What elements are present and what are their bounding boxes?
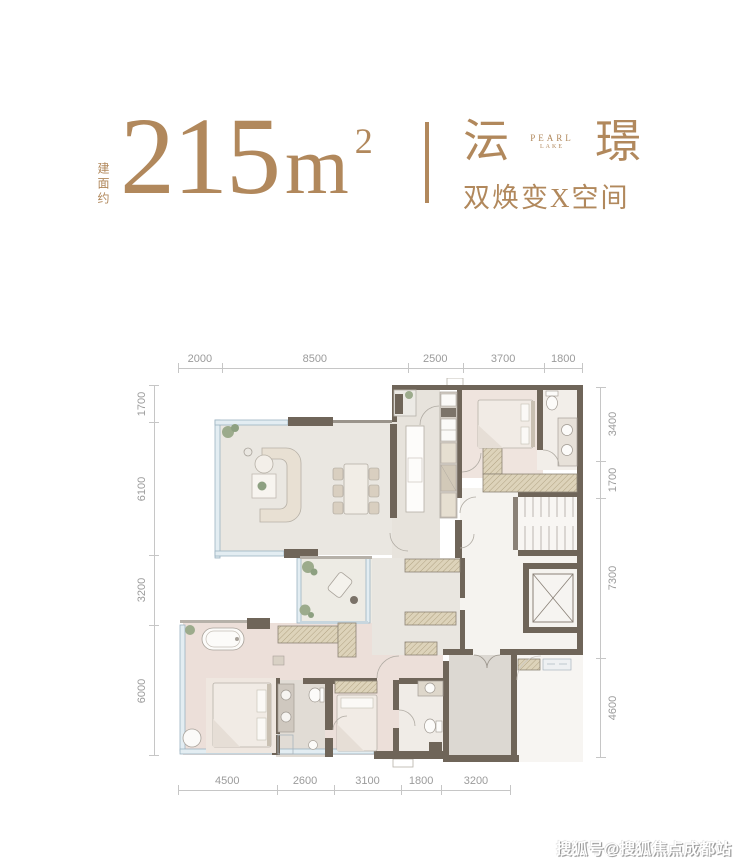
dim-segment: 3700 [463,346,544,368]
dimension-line-top: 2000 8500 2500 3700 1800 [178,346,583,369]
sink [281,712,291,722]
dim-segment: 2600 [277,768,334,790]
pillow [341,698,373,708]
dim-label: 4500 [178,775,277,787]
logo-word-top: PEARL [530,133,574,144]
dim-label: 6000 [136,678,148,702]
toilet [425,719,436,733]
dim-label: 3200 [441,775,511,787]
plant [258,482,267,491]
nightstand [273,656,284,665]
area-figure: 215 m 2 [120,101,373,211]
logo-word-bottom: LAKE [530,144,574,152]
brand-name-row: 沄 PEARL LAKE 璟 [463,116,641,169]
area-unit: m [285,125,349,207]
dim-label: 1800 [544,353,583,365]
dim-segment: 1800 [401,768,440,790]
dim-segment: 2500 [408,346,463,368]
pearl-lake-logo: PEARL LAKE [530,133,574,152]
dim-label: 8500 [222,353,408,365]
bedroom-top [478,400,535,448]
dim-segment: 1800 [544,346,583,368]
dim-segment: 3200 [130,555,154,625]
brand-char-right: 璟 [595,116,641,169]
dim-label: 2500 [408,353,463,365]
pillow [521,404,529,421]
area-exponent: 2 [355,123,373,159]
area-prefix-label: 建面约 [95,162,112,207]
dimension-line-bottom: 4500 2600 3100 1800 3200 [178,768,511,791]
pillow [257,690,266,712]
brand-tagline: 双焕变X空间 [463,176,641,215]
brand-char-left: 沄 [463,116,509,169]
side-table [255,455,273,473]
dim-label: 3100 [334,775,402,787]
dim-segment: 6100 [130,422,154,555]
dim-segment: 6000 [130,625,154,756]
pillow [257,718,266,740]
dim-label: 2600 [277,775,334,787]
hall-cabinet [543,659,571,670]
toilet [547,396,558,410]
sink [281,690,291,700]
elevator [533,574,573,622]
floorplan-poster: 建面约 215 m 2 沄 PEARL LAKE 璟 双焕变X空间 2000 8… [0,0,740,865]
dim-label: 1800 [401,775,440,787]
dim-label: 6100 [136,476,148,500]
dim-label: 3700 [463,353,544,365]
dim-label: 1700 [136,391,148,415]
sink [562,445,573,456]
dim-segment: 1700 [130,385,154,422]
dining-set [333,464,379,514]
dim-label: 3200 [136,578,148,602]
watermark: 搜狐号@搜狐焦点成都站 [556,837,732,859]
dim-segment: 3100 [334,768,402,790]
floor-plan-drawing [178,378,610,770]
kitchen-island [406,426,424,512]
dim-label: 2000 [178,353,222,365]
pouf [183,729,201,747]
dim-segment: 3200 [441,768,511,790]
pillow [521,427,529,444]
header-divider [425,122,429,203]
toilet [309,688,321,702]
stairs [518,497,577,550]
dim-segment: 2000 [178,346,222,368]
area-number: 215 [120,101,279,211]
sink [425,683,435,693]
sink [562,425,573,436]
dimension-line-left: 1700 6100 3200 6000 [130,385,155,756]
dim-segment: 8500 [222,346,408,368]
brand-block: 沄 PEARL LAKE 璟 双焕变X空间 [463,116,641,215]
plant [231,424,239,432]
plant [185,625,195,635]
plant [405,391,413,399]
dim-segment: 4500 [178,768,277,790]
